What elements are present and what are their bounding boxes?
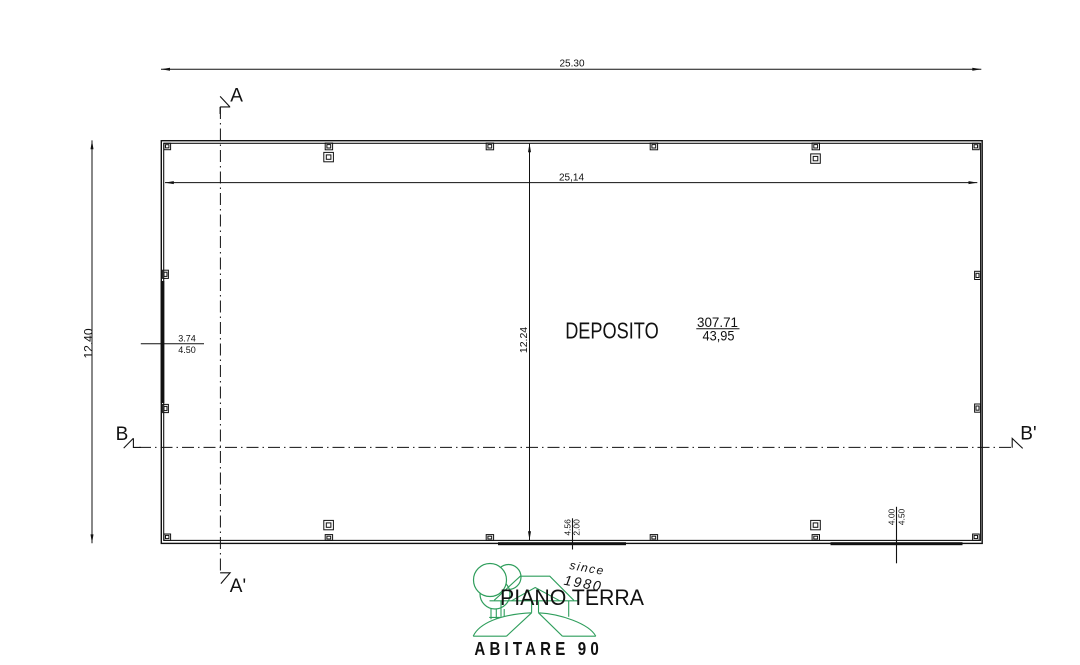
svg-text:A': A' <box>230 576 246 597</box>
svg-text:4.00: 4.00 <box>887 508 897 525</box>
svg-text:PIANO TERRA: PIANO TERRA <box>500 585 644 610</box>
svg-text:B': B' <box>1020 424 1036 445</box>
svg-text:B: B <box>116 424 129 445</box>
svg-text:12.24: 12.24 <box>518 327 530 353</box>
svg-text:2.00: 2.00 <box>571 519 581 536</box>
svg-text:4.50: 4.50 <box>897 508 907 525</box>
svg-text:43,95: 43,95 <box>703 328 735 343</box>
svg-text:25,14: 25,14 <box>559 173 584 184</box>
svg-text:25.30: 25.30 <box>559 58 584 69</box>
svg-text:ABITARE 90: ABITARE 90 <box>474 639 603 659</box>
svg-text:12.40: 12.40 <box>82 328 96 358</box>
svg-text:3.74: 3.74 <box>178 334 196 344</box>
svg-text:DEPOSITO: DEPOSITO <box>565 317 659 343</box>
svg-text:A: A <box>230 86 243 107</box>
svg-text:4.50: 4.50 <box>178 345 196 355</box>
